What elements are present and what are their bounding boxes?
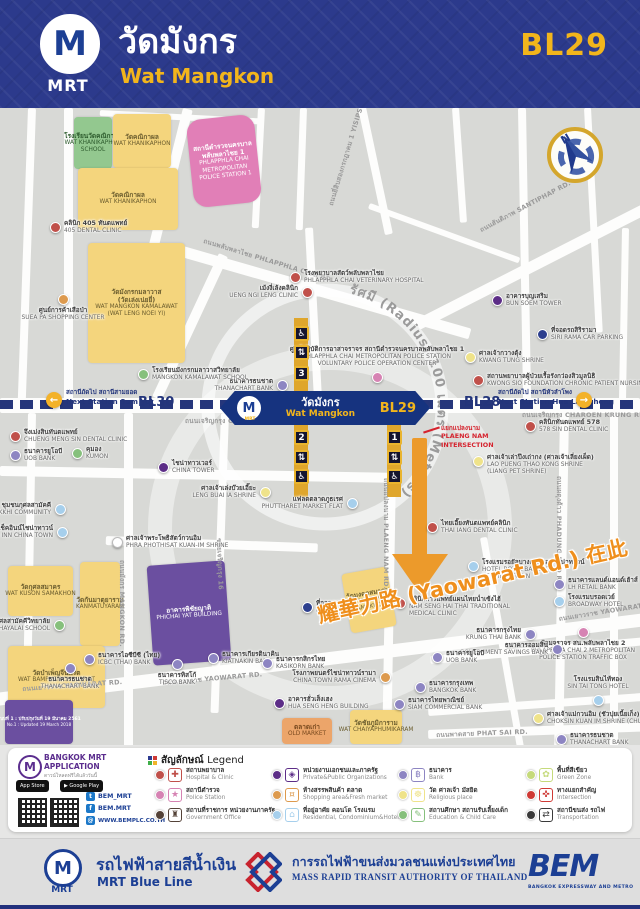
- poi-label: ธนาคารธนชาตTHANACHART BANK: [41, 676, 99, 691]
- poi-dot-residential: [554, 596, 565, 607]
- label-english: PHRA PHOTHISAT KUAN-IM SHRINE: [126, 543, 228, 550]
- label-english: OLD MARKET: [288, 731, 326, 738]
- label-thai: ที่จอดรถสิริรามา: [551, 327, 623, 335]
- poi-dot-bank: [10, 450, 21, 461]
- prev-station-code: BL30: [138, 395, 174, 410]
- label-thai: วัดกุศลสมาคร: [21, 583, 61, 591]
- label-thai: ธนาคารยูโอบี: [446, 650, 484, 658]
- road-label: ถนนมังกร MANGKON RD.: [117, 560, 127, 647]
- label-english: HUA SENG HENG BUILDING: [288, 704, 369, 711]
- googleplay-badge[interactable]: ▶ Google Play: [60, 780, 103, 792]
- legend-dot-residential: [272, 810, 282, 820]
- label-thai: วัดคณิกาผล: [125, 133, 159, 141]
- legend-dot-government: [155, 810, 165, 820]
- label-thai: โรงเรียนกุศลสามัคคีวิทยาลัย: [0, 618, 50, 626]
- legend-item-english: Education & Child Care: [429, 815, 508, 822]
- legend-item-english: Hospital & Clinic: [186, 775, 234, 782]
- poi-dot-bank: [432, 652, 443, 663]
- poi-label: ไทยเอี๊ยงทันตแพทย์คลินิกTHAI IANG DENTAL…: [441, 520, 518, 535]
- poi-label: ธนาคารไทยพาณิชย์SIAM COMMERCIAL BANK: [408, 697, 482, 712]
- mrta-name-thai: การรถไฟฟ้าขนส่งมวลชนแห่งประเทศไทย: [292, 852, 515, 872]
- label-thai: ธนาคารธนชาต: [41, 676, 99, 684]
- legend-item-english: Intersection: [557, 795, 596, 802]
- poi-label: ศาลเจ้าพระโพธิสัตว์กวนอิมPHRA PHOTHISAT …: [126, 535, 228, 550]
- label-thai: เม้งงี่เล้งคลินิก: [229, 285, 298, 293]
- appstore-badge[interactable]: App Store: [16, 780, 49, 792]
- intersection-label: แยกแปลงนามPLAENG NAMINTERSECTION: [441, 424, 494, 449]
- label-thai: ศาลเจ้าเล่าปึงเถ่ากง (ศาลเจ้าเลี่ยงเผ็ด): [487, 454, 594, 462]
- label-english: SIAM COMMERCIAL BANK: [408, 705, 482, 712]
- legend-hospital-icon: ✚: [168, 768, 182, 782]
- label-english: UOB BANK: [446, 658, 484, 665]
- label-english: WAT MANGKON KAMALAWAT: [95, 304, 177, 311]
- road: [64, 108, 73, 400]
- facebook-row[interactable]: f BEM.MRT: [86, 804, 131, 813]
- poi-label: โรงเรียนมังกรกมลาวาสวิทยาลัยMANGKON KAMA…: [152, 367, 248, 382]
- label-english: KASIKORN BANK: [276, 664, 325, 671]
- station-area-map-poster: M MRT วัดมังกร Wat Mangkon BL29 รัศมี (R…: [0, 0, 640, 909]
- intersection-label-line: INTERSECTION: [441, 441, 494, 449]
- legend-item-label: วัด ศาลเจ้า มัสยิดReligious place: [429, 787, 478, 802]
- mrt-logo-label: MRT: [36, 76, 100, 95]
- label-english: BROADWAY HOTEL: [568, 602, 623, 609]
- map-canvas: รัศมี (Radius) 100 เมตร (Meters) M MRT ว…: [0, 108, 640, 745]
- legend-education-icon: ✎: [411, 808, 425, 822]
- next-station-label: สถานีถัดไป สถานีหัวลำโพง Next Station Hu…: [498, 389, 614, 406]
- road-label: ถนนพาดสาย PHAT SAI RD.: [436, 727, 528, 740]
- legend-item-english: Green Zone: [557, 775, 591, 782]
- poi-label: ธนาคารแลนด์แอนด์เฮ้าส์LH RETAIL BANK: [568, 577, 638, 592]
- label-thai: แฟลตตลาดภูธเรศ: [262, 496, 343, 504]
- poi-label: ธนาคารยูโอบีUOB BANK: [446, 650, 484, 665]
- road: [180, 246, 471, 339]
- label-english: 405 DENTAL CLINIC: [64, 228, 127, 235]
- poi-label: อาคารบุญเสริมBUN SOEM TOWER: [506, 293, 562, 308]
- label-english: ICBC (THAI) BANK: [98, 660, 160, 667]
- intersection-pointer-line: [423, 426, 440, 433]
- label-thai: ธนาคารทิสโก้: [158, 672, 197, 680]
- legend-police-icon: ★: [168, 788, 182, 802]
- poi-dot-bank: [552, 644, 563, 655]
- label-english: KHUSON SAMAKKHI COMMUNITY: [0, 510, 51, 517]
- poi-label: โรงพยาบาลสัตว์พลับพลาไชยPHLAPPHLA CHAI V…: [304, 270, 424, 285]
- poi-label: เช็คอินน์ไชน่าทาวน์CHECK INN CHINA TOWN: [0, 525, 53, 540]
- label-english: SCHOOL: [81, 147, 105, 154]
- poi-label: ธนาคารกรุงเทพBANGKOK BANK: [429, 680, 476, 695]
- poi-dot-education: [54, 620, 65, 631]
- label-english: SIRI RAMA CAR PARKING: [551, 335, 623, 342]
- poi-dot-religious: [533, 713, 544, 724]
- poi-label: ที่จอดรถสิริรามาSIRI RAMA CAR PARKING: [551, 327, 623, 342]
- legend-panel: M BANGKOK MRT APPLICATION ดาวน์โหลดฟรีได…: [8, 748, 632, 832]
- exit-2-icon: 2: [294, 430, 309, 445]
- label-thai: โรงแรมสินไท้ทอง: [567, 676, 628, 684]
- poi-dot-bank: [65, 663, 76, 674]
- label-thai: วัดมังกรกมลาวาส: [112, 288, 162, 296]
- road: [18, 108, 36, 400]
- label-english: VOLUNTARY POLICE OPERATION CENTER: [290, 361, 464, 368]
- next-station-code: BL28: [464, 395, 500, 410]
- road-label: ถนนแปลงนาม PLAENG NAM RD.: [381, 478, 391, 589]
- building: แบบที่ 1 : ปรับปรุงวันที่ 19 มีนาคม 2561…: [5, 700, 73, 744]
- legend-item-thai: สถานีตำรวจ: [186, 787, 225, 795]
- label-thai: ศาลเจ้ากวางตุ้ง: [479, 350, 544, 358]
- legend-title: สัญลักษณ์ Legend: [148, 753, 244, 768]
- twitter-row[interactable]: t BEM_MRT: [86, 792, 132, 801]
- label-english: CHUENG MENG SIN DENTAL CLINIC: [24, 437, 127, 444]
- label-english: THANACHART BANK: [570, 740, 628, 745]
- poi-dot-residential: [347, 498, 358, 509]
- label-english: PHUTTHARET MARKET FLAT: [262, 504, 343, 511]
- poi-dot-hospital: [290, 272, 301, 283]
- label-thai: ธนาคารไทยพาณิชย์: [408, 697, 482, 705]
- legend-item-english: Religious place: [429, 795, 478, 802]
- station-mrt-label: MRT: [239, 417, 261, 422]
- label-english: PHLAPPHLA CHAI METROPOLITAN POLICE STATI…: [290, 354, 464, 361]
- poi-dot-private: [274, 698, 285, 709]
- legend-item-thai: สถานพยาบาล: [186, 767, 234, 775]
- station-code-badge: BL29: [520, 28, 608, 63]
- poi-dot-bank: [262, 658, 273, 669]
- legend-intersection-icon: ✜: [539, 788, 553, 802]
- legend-item-english: Government Office: [186, 815, 275, 822]
- label-english: SUEA PA SHOPPING CENTER: [22, 315, 105, 322]
- label-thai: คุมอง: [86, 446, 108, 454]
- station-name-thai: วัดมังกร: [261, 397, 380, 410]
- mrta-name-english: MASS RAPID TRANSIT AUTHORITY OF THAILAND: [292, 872, 528, 882]
- legend-private-icon: ◈: [285, 768, 299, 782]
- legend-item-thai: ธนาคาร: [429, 767, 452, 775]
- label-thai: คลินิกทันตแพทย์ 578: [539, 419, 608, 427]
- label-english: PHLAPPHLA CHAI VETERINARY HOSPITAL: [304, 278, 424, 285]
- qr-code-googleplay: [50, 798, 79, 827]
- label-thai: วัดชัยภูมิการาม: [354, 719, 398, 727]
- poi-dot-residential: [55, 504, 66, 515]
- prev-station-arrow-icon: ←: [46, 392, 62, 408]
- poi-label: ศาลเจ้าแม่กวนอิม (ชัวปุยเนี้ยเก็ง)CHOKSI…: [547, 711, 640, 726]
- label-thai: อาคารบุญเสริม: [506, 293, 562, 301]
- poi-dot-hospital: [50, 222, 61, 233]
- mrt-app-logo-icon: M: [18, 755, 42, 779]
- legend-dot-intersection: [526, 790, 536, 800]
- station-name-english: Wat Mangkon: [261, 409, 380, 419]
- legend-item-label: สถานศึกษา สถานรับเลี้ยงเด็กEducation & C…: [429, 807, 508, 822]
- legend-item-label: ห้างสรรพสินค้า ตลาดShopping area&Fresh m…: [303, 787, 387, 802]
- label-english: UOB BANK: [24, 456, 62, 463]
- legend-item-thai: ที่อยู่อาศัย คอนโด โรงแรม: [303, 807, 402, 815]
- header: M MRT วัดมังกร Wat Mangkon BL29: [0, 0, 640, 108]
- label-english: LENG BUAI IA SHRINE: [192, 493, 256, 500]
- label-english: (LIANG PET SHRINE): [487, 469, 594, 476]
- legend-item-label: ธนาคารBank: [429, 767, 452, 782]
- mrt-logo-icon: M: [40, 14, 100, 74]
- bottom-accent-strip: [0, 905, 640, 909]
- poi-dot-hospital: [473, 375, 484, 386]
- legend-title-thai: สัญลักษณ์: [161, 755, 204, 766]
- label-thai: ธนาคารกสิกรไทย: [276, 656, 325, 664]
- poi-dot-hospital: [10, 431, 21, 442]
- legend-item-label: สถานีขนส่ง รถไฟTransportation: [557, 807, 605, 822]
- poi-dot-religious: [473, 456, 484, 467]
- poi-label: จึงเม่งสินทันตแพทย์CHUENG MENG SIN DENTA…: [24, 429, 127, 444]
- poi-label: ชุมชนกุศลสามัคคีKHUSON SAMAKKHI COMMUNIT…: [0, 502, 51, 517]
- poi-label: อาคารฮั่วเส็งเฮงHUA SENG HENG BUILDING: [288, 696, 369, 711]
- label-english: WAT KHANIKAPHON: [100, 199, 157, 206]
- building: วัดชัยภูมิการามWAT CHAIYAPHUMIKARAM: [350, 710, 402, 744]
- legend-item-thai: ทางแยกสำคัญ: [557, 787, 596, 795]
- station-title-english: Wat Mangkon: [120, 64, 274, 88]
- blue-line-english: MRT Blue Line: [97, 875, 193, 889]
- poi-label: ไชน่าทาวเวอร์CHINA TOWER: [172, 460, 214, 475]
- intersection-label-line: PLAENG NAM: [441, 432, 494, 440]
- legend-dot-shopping: [272, 790, 282, 800]
- station-code: BL29: [380, 401, 416, 416]
- building: โรงเรียนวัดคณิกาผลWAT KHANIKAPHONSCHOOL: [74, 117, 112, 169]
- facebook-handle: BEM.MRT: [98, 805, 131, 812]
- legend-item-thai: ห้างสรรพสินค้า ตลาด: [303, 787, 387, 795]
- legend-item-label: ทางแยกสำคัญIntersection: [557, 787, 596, 802]
- label-thai: โรงแรมบรอดเวย์: [568, 594, 623, 602]
- legend-item-label: หน่วยงานเอกชนและภาครัฐPrivate&Public Org…: [303, 767, 387, 782]
- label-thai: เช็คอินน์ไชน่าทาวน์: [0, 525, 53, 533]
- label-english: KWONG SIO FOUNDATION CHRONIC PATIENT NUR…: [487, 381, 640, 388]
- legend-item-thai: พื้นที่สีเขียว: [557, 767, 591, 775]
- label-thai: คลินิก 405 ทันตแพทย์: [64, 220, 127, 228]
- exit-1-icon: 1: [387, 430, 402, 445]
- poi-dot-hospital: [302, 287, 313, 298]
- poi-label: ศูนย์ปฏิบัติการอาสาจราจร สถานีตำรวจนครบา…: [290, 346, 464, 368]
- label-english: LH RETAIL BANK: [568, 585, 638, 592]
- poi-dot-bank: [525, 629, 536, 640]
- legend-dot-police: [155, 790, 165, 800]
- intersection-label-line: แยกแปลงนาม: [441, 424, 494, 432]
- label-english: MEDICAL CLINIC: [409, 611, 510, 618]
- facebook-icon: f: [86, 804, 95, 813]
- legend-item-thai: สถานศึกษา สถานรับเลี้ยงเด็ก: [429, 807, 508, 815]
- elevator-icon: ⇅: [294, 345, 309, 360]
- poi-label: ศูนย์การค้าเสือป่าSUEA PA SHOPPING CENTE…: [22, 307, 105, 322]
- label-english: THAI IANG DENTAL CLINIC: [441, 528, 518, 535]
- legend-dot-hospital: [155, 770, 165, 780]
- label-thai: วัดคณิกาผล: [111, 191, 145, 199]
- wheelchair-icon: ♿: [294, 326, 309, 341]
- label-thai: ธนาคารยูโอบี: [24, 448, 62, 456]
- label-thai: ศูนย์ปฏิบัติการอาสาจราจร สถานีตำรวจนครบา…: [290, 346, 464, 354]
- poi-dot-parking: [302, 602, 313, 613]
- building: วัดคณิกาผลWAT KHANIKAPHON: [113, 114, 171, 168]
- compass-icon: N: [546, 126, 604, 184]
- mrta-logo-icon: [242, 852, 282, 892]
- poi-dot-religious: [465, 352, 476, 363]
- web-icon: @: [86, 816, 95, 825]
- station-name: วัดมังกร Wat Mangkon: [261, 397, 380, 420]
- elevator-icon: ⇅: [294, 450, 309, 465]
- legend-item-label: สถานีตำรวจPolice Station: [186, 787, 225, 802]
- poi-label: โรงเรียนกุศลสามัคคีวิทยาลัยKUSONSAMAKKHI…: [0, 618, 50, 633]
- legend-dot-transport: [526, 810, 536, 820]
- legend-item-english: Residential, Condominium&Hotels: [303, 815, 402, 822]
- legend-dot-green: [526, 770, 536, 780]
- legend-item-thai: หน่วยงานเอกชนและภาครัฐ: [303, 767, 387, 775]
- poi-label: ธนาคารไอซีบีซี (ไทย)ICBC (THAI) BANK: [98, 652, 160, 667]
- legend-item-english: Bank: [429, 775, 452, 782]
- poi-dot-education: [138, 369, 149, 380]
- legend-dot-bank: [398, 770, 408, 780]
- legend-dot-education: [398, 810, 408, 820]
- poi-label: ศาลเจ้าเล่งบ๊วยเอี๊ยะLENG BUAI IA SHRINE: [192, 485, 256, 500]
- yaowarat-direction-arrow: [412, 438, 427, 556]
- legend-title-english: Legend: [207, 755, 244, 766]
- poi-label: แฟลตตลาดภูธเรศPHUTTHARET MARKET FLAT: [262, 496, 343, 511]
- poi-dot-police: [372, 372, 383, 383]
- label-thai: ธนาคารเกียรตินาคิน: [222, 651, 279, 659]
- label-thai: โรงภาพยนตร์ไชน่าทาวน์รามา: [292, 670, 376, 678]
- legend-item-thai: วัด ศาลเจ้า มัสยิด: [429, 787, 478, 795]
- wheelchair-icon: ♿: [387, 469, 402, 484]
- poi-label: โรงภาพยนตร์ไชน่าทาวน์รามาCHINA TOWN RAMA…: [292, 670, 376, 685]
- legend-item-thai: สถานีขนส่ง รถไฟ: [557, 807, 605, 815]
- legend-band: M BANGKOK MRT APPLICATION ดาวน์โหลดฟรีได…: [0, 745, 640, 838]
- poi-dot-education: [72, 448, 83, 459]
- poi-label: ธนาคารกสิกรไทยKASIKORN BANK: [276, 656, 325, 671]
- next-station-arrow-icon: →: [576, 392, 592, 408]
- label-english: KUMON: [86, 454, 108, 461]
- poi-dot-shopping: [380, 672, 391, 683]
- label-thai: ตลาดเก่า: [294, 723, 320, 731]
- poi-label: ธนาคารกรุงไทยKRUNG THAI BANK: [466, 627, 521, 642]
- label-thai: ธนาคารกรุงเทพ: [429, 680, 476, 688]
- poi-dot-hospital: [427, 522, 438, 533]
- bem-subtitle: BANGKOK EXPRESSWAY AND METRO: [528, 885, 633, 890]
- app-name-line1: BANGKOK MRT: [44, 754, 106, 762]
- legend-government-icon: ♜: [168, 808, 182, 822]
- station-title-thai: วัดมังกร: [118, 14, 237, 68]
- poi-dot-hospital: [525, 421, 536, 432]
- building: ตลาดเก่าOLD MARKET: [282, 718, 332, 744]
- label-english: CHECK INN CHINA TOWN: [0, 533, 53, 540]
- label-english: KWANG TUNG SHRINE: [479, 358, 544, 365]
- legend-item-english: Private&Public Organizations: [303, 775, 387, 782]
- poi-dot-bank: [208, 653, 219, 664]
- qr-code-appstore: [18, 798, 47, 827]
- label-thai: (วัดเล่งเน่ยยี่): [118, 296, 155, 304]
- legend-item-label: พื้นที่สีเขียวGreen Zone: [557, 767, 591, 782]
- legend-item-english: Shopping area&Fresh market: [303, 795, 387, 802]
- label-english: UENG NGI LENG CLINIC: [229, 293, 298, 300]
- footer-mrt-label: MRT: [40, 885, 84, 895]
- poi-dot-bank: [172, 659, 183, 670]
- road: [296, 108, 307, 230]
- label-english: WAT CHAIYAPHUMIKARAM: [339, 727, 414, 734]
- poi-dot-bank: [84, 654, 95, 665]
- website-row[interactable]: @ WWW.BEMPLC.CO.TH: [86, 816, 165, 825]
- poi-dot-residential: [593, 695, 604, 706]
- label-thai: สถานพยาบาลผู้ป่วยเรื้อรังกว่องสิวมูลนิธิ: [487, 373, 640, 381]
- label-english: MANGKON KAMALAWAT SCHOOL: [152, 375, 248, 382]
- poi-label: เม้งงี่เล้งคลินิกUENG NGI LENG CLINIC: [229, 285, 298, 300]
- label-thai: ศูนย์การค้าเสือป่า: [22, 307, 105, 315]
- poi-dot-private: [492, 295, 503, 306]
- label-english: WAT KHANIKAPHON: [114, 141, 171, 148]
- label-thai: ธนาคารไอซีบีซี (ไทย): [98, 652, 160, 660]
- station-marker: M MRT วัดมังกร Wat Mangkon BL29: [220, 391, 430, 425]
- legend-dot-private: [272, 770, 282, 780]
- legend-title-icon: [148, 756, 157, 765]
- poi-label: ธนาคารทิสโก้TISCO BANK: [158, 672, 197, 687]
- poi-dot-bank: [554, 579, 565, 590]
- poi-dot-parking: [537, 329, 548, 340]
- poi-label: ธนาคารยูโอบีUOB BANK: [24, 448, 62, 463]
- legend-item-label: สถานพยาบาลHospital & Clinic: [186, 767, 234, 782]
- poi-dot-bank: [277, 380, 288, 391]
- app-tagline: ดาวน์โหลดฟรีได้แล้ววันนี้: [44, 772, 97, 780]
- poi-label: ศาลเจ้าเล่าปึงเถ่ากง (ศาลเจ้าเลี่ยงเผ็ด)…: [487, 454, 594, 476]
- building: วัดมังกรกมลาวาส(วัดเล่งเน่ยยี่)WAT MANGK…: [88, 243, 185, 363]
- poi-dot-bank: [556, 734, 567, 745]
- legend-green-icon: ✿: [539, 768, 553, 782]
- wheelchair-icon: ♿: [294, 469, 309, 484]
- poi-dot-shrine: [112, 537, 123, 548]
- poi-label: ธนาคารธนชาตTHANACHART BANK: [570, 732, 628, 745]
- legend-item-english: Police Station: [186, 795, 225, 802]
- label-english: CHINA TOWER: [172, 468, 214, 475]
- poi-label: โรงแรมบรอดเวย์BROADWAY HOTEL: [568, 594, 623, 609]
- poi-label: คลินิกทันตแพทย์ 578578 SIN DENTAL CLINIC: [539, 419, 608, 434]
- label-thai: โรงเรียนมังกรกมลาวาสวิทยาลัย: [152, 367, 248, 375]
- label-english: CHOKSIN KUAN IM SHRINE (CHUA PUI NIA YIA…: [547, 719, 640, 726]
- poi-label: สถานพยาบาลผู้ป่วยเรื้อรังกว่องสิวมูลนิธิ…: [487, 373, 640, 388]
- legend-item-label: ที่อยู่อาศัย คอนโด โรงแรมResidential, Co…: [303, 807, 402, 822]
- label-thai: ศาลเจ้าแม่กวนอิม (ชัวปุยเนี้ยเก็ง): [547, 711, 640, 719]
- label-english: 578 SIN DENTAL CLINIC: [539, 427, 608, 434]
- poi-dot-police: [578, 627, 589, 638]
- poi-label: ศาลเจ้ากวางตุ้งKWANG TUNG SHRINE: [479, 350, 544, 365]
- label-english: CHINA TOWN RAMA CINEMA: [292, 678, 376, 685]
- poi-dot-bank: [415, 682, 426, 693]
- label-thai: ศาลเจ้าเล่งบ๊วยเอี๊ยะ: [192, 485, 256, 493]
- building: วัดกุศลสมาครWAT KUSON SAMAKHON: [8, 566, 73, 616]
- label-thai: อาคารฮั่วเส็งเฮง: [288, 696, 369, 704]
- legend-item-english: Transportation: [557, 815, 605, 822]
- label-english: WAT KUSON SAMAKHON: [5, 591, 75, 598]
- legend-item-label: สถานที่ราชการ หน่วยงานภาครัฐGovernment O…: [186, 807, 275, 822]
- label-thai: โรงพยาบาลสัตว์พลับพลาไชย: [304, 270, 424, 278]
- poi-label: โรงแรมสินไท้ทองSIN TAI TONG HOTEL: [567, 676, 628, 691]
- building: วัดกันมาตุยารามKANMATUYARAM: [80, 562, 120, 646]
- building: สถานีตำรวจนครบาลพลับพลาไชย 1PHLAPPHLA CH…: [186, 114, 263, 209]
- label-thai: ธนาคารกรุงไทย: [466, 627, 521, 635]
- label-english: KUSONSAMAKKHI WITTHAYALAI SCHOOL: [0, 626, 50, 633]
- road: [452, 108, 467, 223]
- legend-item-thai: สถานที่ราชการ หน่วยงานภาครัฐ: [186, 807, 275, 815]
- bem-logo: BEM: [528, 849, 598, 884]
- legend-transport-icon: ⇄: [539, 808, 553, 822]
- map-revision-note-english: No.1 : Updated 19 March 2018: [7, 722, 71, 727]
- legend-religious-icon: ☸: [411, 788, 425, 802]
- label-thai: ธนาคารแลนด์แอนด์เฮ้าส์: [568, 577, 638, 585]
- label-thai: ไทยเอี๊ยงทันตแพทย์คลินิก: [441, 520, 518, 528]
- twitter-icon: t: [86, 792, 95, 801]
- app-name-line2: APPLICATION: [44, 763, 100, 771]
- label-thai: ชุมชนกุศลสามัคคี: [0, 502, 51, 510]
- elevator-icon: ⇅: [387, 450, 402, 465]
- footer: M MRT รถไฟฟ้าสายสีน้ำเงิน MRT Blue Line …: [0, 838, 640, 906]
- label-english: BANGKOK BANK: [429, 688, 476, 695]
- label-thai: จึงเม่งสินทันตแพทย์: [24, 429, 127, 437]
- poi-label: คลินิก 405 ทันตแพทย์405 DENTAL CLINIC: [64, 220, 127, 235]
- poi-dot-shopping: [58, 294, 69, 305]
- label-thai: ศาลเจ้าพระโพธิสัตว์กวนอิม: [126, 535, 228, 543]
